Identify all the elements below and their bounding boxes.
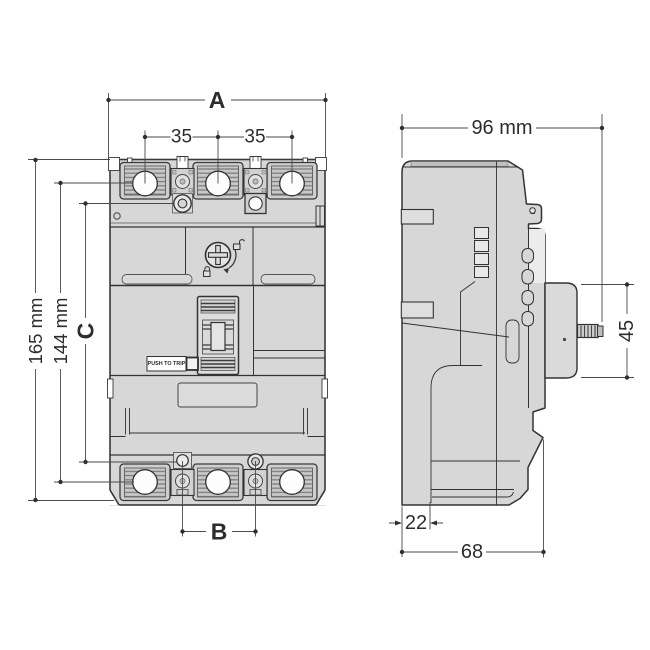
escutcheon-pin bbox=[563, 338, 566, 341]
dim-label-base-depth: 68 bbox=[461, 541, 483, 563]
dim-label-base-offset: 22 bbox=[405, 512, 427, 534]
dim-label-c: C bbox=[73, 323, 99, 340]
mounting-notch-upper bbox=[401, 210, 433, 225]
toggle-handle-front bbox=[198, 297, 239, 375]
top-lip bbox=[411, 162, 508, 167]
dim-label-escutcheon-height: 45 bbox=[616, 320, 638, 342]
dim-label-height-inner: 144 mm bbox=[50, 298, 71, 365]
toggle-handle-side bbox=[578, 325, 604, 338]
label-slot-right bbox=[261, 275, 315, 285]
dim-label-pitch-right: 35 bbox=[244, 127, 265, 148]
ear-detail bbox=[530, 208, 536, 214]
drawing-canvas: PUSH TO TRIP bbox=[0, 0, 650, 650]
side-slot-right bbox=[322, 379, 328, 398]
right-edge-latch bbox=[316, 206, 325, 226]
handle-escutcheon bbox=[545, 283, 577, 378]
side-view bbox=[401, 161, 603, 505]
push-to-trip-button bbox=[187, 358, 199, 371]
dim-label-height-total: 165 mm bbox=[25, 298, 46, 365]
phase-barrier-clamp-2 bbox=[244, 169, 267, 196]
dim-label-b: B bbox=[211, 519, 228, 545]
mounting-notch-lower bbox=[401, 302, 433, 318]
ring-screw bbox=[173, 194, 193, 214]
terminal-bottom-3 bbox=[267, 464, 317, 501]
side-slot-left bbox=[108, 379, 114, 398]
breaker-dimensional-drawing: PUSH TO TRIP bbox=[0, 0, 650, 650]
push-to-trip-label: PUSH TO TRIP bbox=[148, 361, 186, 367]
handle-grip bbox=[211, 323, 225, 351]
rating-label-window bbox=[178, 383, 257, 407]
dim-label-a: A bbox=[209, 87, 226, 113]
phase-barrier-clamp-1 bbox=[171, 169, 194, 196]
box-screw bbox=[245, 194, 266, 214]
dim-label-pitch-left: 35 bbox=[171, 127, 192, 148]
front-view: PUSH TO TRIP bbox=[108, 157, 328, 506]
terminal-bottom-2 bbox=[193, 464, 243, 501]
push-to-trip: PUSH TO TRIP bbox=[147, 357, 198, 372]
label-slot-left bbox=[122, 275, 192, 285]
dim-label-depth-total: 96 mm bbox=[471, 117, 532, 139]
